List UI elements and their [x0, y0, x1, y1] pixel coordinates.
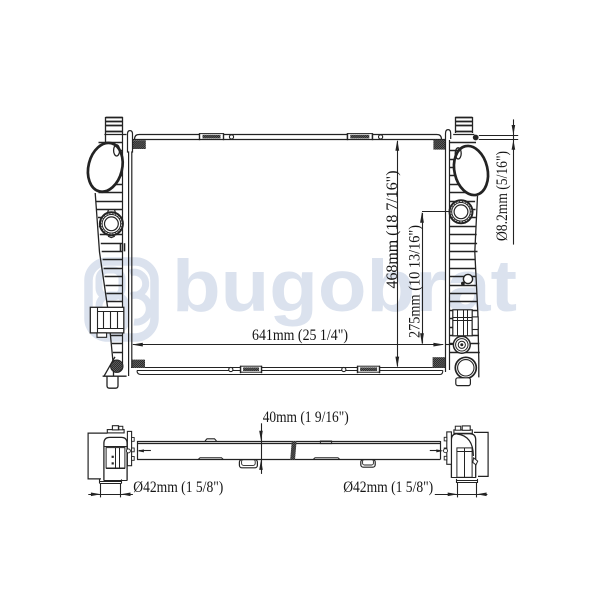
svg-text:40mm (1 9/16"): 40mm (1 9/16")	[263, 409, 349, 426]
svg-text:Ø42mm (1 5/8"): Ø42mm (1 5/8")	[133, 479, 223, 496]
svg-text:275mm (10 13/16"): 275mm (10 13/16")	[407, 225, 424, 338]
svg-text:641mm (25 1/4"): 641mm (25 1/4")	[252, 327, 348, 344]
svg-text:468mm (18 7/16"): 468mm (18 7/16")	[384, 171, 401, 289]
svg-text:Ø8.2mm (5/16"): Ø8.2mm (5/16")	[494, 151, 511, 241]
svg-text:Ø42mm (1 5/8"): Ø42mm (1 5/8")	[343, 479, 433, 496]
